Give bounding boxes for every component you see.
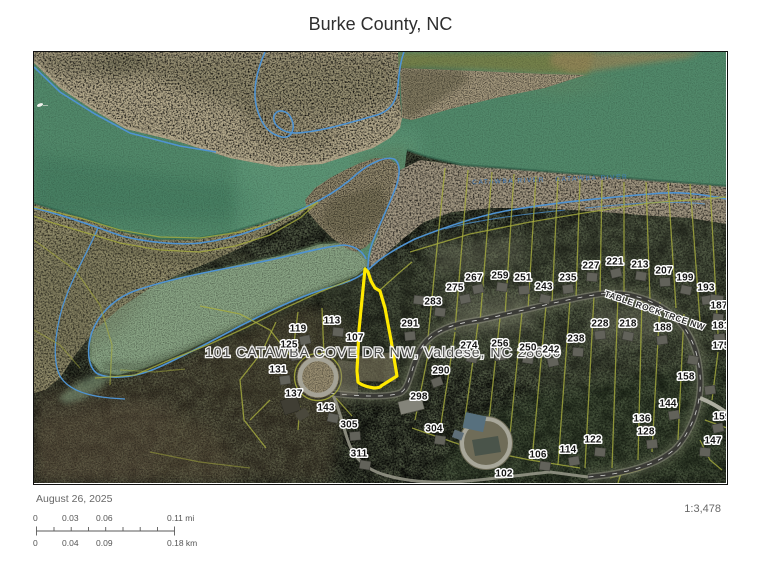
svg-text:242: 242 xyxy=(542,345,560,356)
svg-text:238: 238 xyxy=(567,334,585,345)
svg-text:275: 275 xyxy=(446,283,464,294)
svg-text:235: 235 xyxy=(559,273,577,284)
svg-text:218: 218 xyxy=(619,319,637,330)
svg-text:304: 304 xyxy=(425,424,443,435)
svg-text:137: 137 xyxy=(285,389,303,400)
svg-text:221: 221 xyxy=(606,257,624,268)
svg-text:122: 122 xyxy=(584,435,602,446)
svg-text:147: 147 xyxy=(704,436,722,447)
svg-text:311: 311 xyxy=(351,449,368,460)
svg-text:298: 298 xyxy=(410,392,428,403)
svg-text:113: 113 xyxy=(324,316,341,327)
svg-text:199: 199 xyxy=(676,273,694,284)
svg-text:251: 251 xyxy=(514,273,532,284)
svg-text:188: 188 xyxy=(654,323,672,334)
svg-text:228: 228 xyxy=(591,319,609,330)
svg-text:119: 119 xyxy=(290,324,307,335)
svg-text:256: 256 xyxy=(491,339,509,350)
svg-text:175: 175 xyxy=(712,341,726,352)
svg-text:114: 114 xyxy=(560,445,577,456)
svg-text:136: 136 xyxy=(633,414,651,425)
svg-text:106: 106 xyxy=(529,450,547,461)
svg-text:274: 274 xyxy=(460,341,478,352)
svg-text:267: 267 xyxy=(465,273,483,284)
svg-text:107: 107 xyxy=(346,333,364,344)
svg-text:102: 102 xyxy=(495,469,513,480)
svg-text:243: 243 xyxy=(535,282,553,293)
svg-text:131: 131 xyxy=(269,365,287,376)
svg-text:143: 143 xyxy=(317,403,335,414)
svg-text:213: 213 xyxy=(631,260,649,271)
svg-text:250: 250 xyxy=(519,343,537,354)
svg-text:291: 291 xyxy=(401,319,419,330)
svg-text:290: 290 xyxy=(432,366,450,377)
svg-text:305: 305 xyxy=(340,420,358,431)
svg-text:207: 207 xyxy=(655,266,673,277)
svg-text:128: 128 xyxy=(637,427,655,438)
svg-text:187: 187 xyxy=(710,301,726,312)
svg-text:181: 181 xyxy=(712,321,726,332)
svg-text:125: 125 xyxy=(280,340,298,351)
svg-text:159: 159 xyxy=(713,412,726,423)
svg-text:158: 158 xyxy=(677,372,695,383)
svg-text:227: 227 xyxy=(582,261,600,272)
svg-text:259: 259 xyxy=(491,271,509,282)
svg-text:144: 144 xyxy=(659,399,677,410)
svg-text:283: 283 xyxy=(424,297,442,308)
svg-text:193: 193 xyxy=(697,283,715,294)
